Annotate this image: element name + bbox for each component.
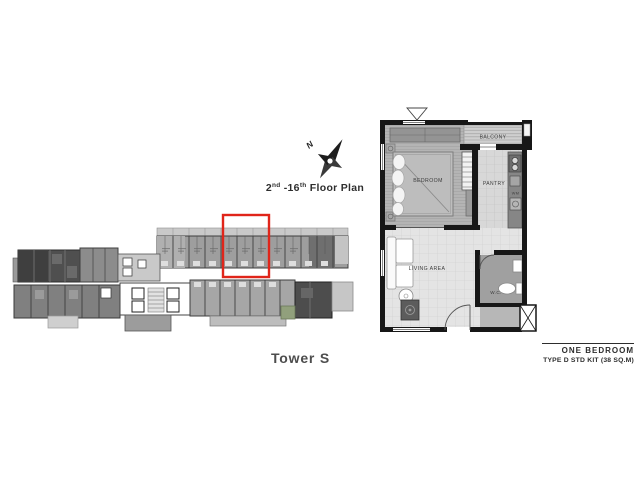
floor-range-mid: -16: [281, 182, 300, 194]
unit-caption: ONE BEDROOM TYPE D STD KIT (38 SQ.M): [494, 343, 634, 364]
unit-floorplan: BEDROOM BALCONY PANTRY WM LIVING AREA W.…: [374, 100, 540, 340]
bedroom-label: BEDROOM: [413, 178, 443, 184]
pantry-label: PANTRY: [483, 181, 505, 187]
balcony-label: BALCONY: [480, 135, 507, 141]
unit-type-subtitle: TYPE D STD KIT (38 SQ.M): [494, 357, 634, 364]
tower-floorplan: [5, 198, 365, 348]
living-area-label: LIVING AREA: [409, 266, 446, 272]
floorplan-page: N 2nd -16th Floor Plan: [0, 0, 640, 480]
tower-name-label: Tower S: [238, 350, 363, 366]
tower-lift-core: [120, 283, 190, 331]
tv-cabinet-icon: [401, 300, 419, 320]
tower-bottom-row: [14, 280, 353, 331]
washing-machine-label: WM: [512, 192, 520, 196]
floor-plan-title: 2nd -16th Floor Plan: [240, 182, 390, 194]
toilet-icon: [499, 283, 523, 294]
washing-machine-icon: [510, 198, 521, 210]
caption-divider: [542, 343, 634, 344]
sink-icon: [513, 260, 522, 272]
compass-star: [318, 139, 343, 178]
tower-top-row: [157, 228, 348, 268]
shaft-icon: [520, 305, 536, 331]
floor-range-end-sup: th: [300, 182, 307, 189]
tower-top-left-section: [13, 248, 160, 282]
wc-label: W.C.: [490, 290, 502, 295]
unit-type-title: ONE BEDROOM: [494, 346, 634, 355]
floor-range-start-sup: nd: [272, 182, 281, 189]
north-entry-marker-icon: [407, 108, 427, 120]
compass-north-label: N: [304, 138, 316, 150]
floor-plan-label: Floor Plan: [307, 182, 365, 194]
tower-garden-patch: [281, 306, 295, 319]
kitchen-counter-icon: [508, 152, 522, 228]
bed-icon: [386, 128, 460, 221]
